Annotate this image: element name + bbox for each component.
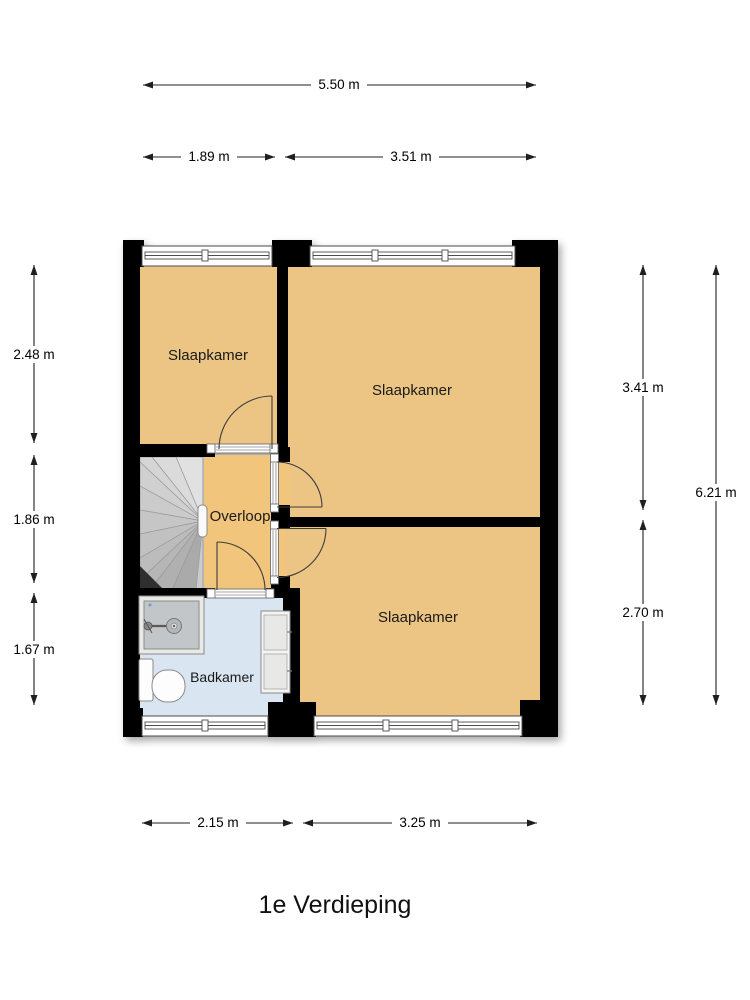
dimension-top-right: 3.51 m [285,148,536,165]
floorplan-canvas: Slaapkamer Slaapkamer Overloop Slaapkame… [0,0,750,1000]
wall-right [540,240,558,737]
window-top-left [142,246,272,266]
room-label-overloop: Overloop [210,508,271,525]
floor-title: 1e Verdieping [259,891,412,919]
floorplan-page: Slaapkamer Slaapkamer Overloop Slaapkame… [0,0,750,1000]
room-label-slaapkamer-topleft: Slaapkamer [168,347,248,364]
door-threshold-bottom-bedroom [271,521,279,584]
dimension-right-total: 6.21 m [688,265,744,705]
wall-top-left-corner [123,240,144,267]
window-bottom-right [314,716,522,736]
window-bottom-left [142,716,268,736]
wall-bottom-left-corner [123,708,143,737]
wall-above-stairs [123,444,215,457]
stairs [138,455,207,590]
door-threshold-topleft-bedroom [207,444,278,453]
svg-text:5.50 m: 5.50 m [318,77,359,92]
stairs-newel [198,505,207,537]
dimension-right-lower: 2.70 m [615,520,671,705]
svg-text:3.51 m: 3.51 m [390,149,431,164]
dimension-right-upper: 3.41 m [615,265,671,510]
wall-bottom-middle [268,702,316,737]
window-top-right [310,246,515,266]
svg-text:3.41 m: 3.41 m [622,380,663,395]
wall-left [123,240,140,737]
wall-bottom-right-corner [520,700,558,737]
dimension-bottom-left: 2.15 m [142,814,293,831]
room-label-slaapkamer-bottom: Slaapkamer [378,609,458,626]
svg-text:2.70 m: 2.70 m [622,605,663,620]
door-threshold-topright-bedroom [271,454,279,512]
svg-text:2.48 m: 2.48 m [13,347,54,362]
svg-text:1.67 m: 1.67 m [13,642,54,657]
door-threshold-badkamer [207,589,274,598]
svg-text:1.89 m: 1.89 m [188,149,229,164]
dimension-top-total: 5.50 m [143,76,536,93]
cabinet [261,611,292,693]
svg-text:1.86 m: 1.86 m [13,512,54,527]
svg-text:2.15 m: 2.15 m [197,815,238,830]
dimension-left-upper: 2.48 m [6,265,62,443]
dimension-left-middle: 1.86 m [6,455,62,583]
wall-between-right-rooms [288,517,540,527]
svg-text:6.21 m: 6.21 m [695,485,736,500]
dimension-left-lower: 1.67 m [6,593,62,705]
room-label-badkamer: Badkamer [190,669,254,685]
wall-top-pier [272,240,312,267]
dimension-top-left: 1.89 m [143,148,275,165]
wall-between-top-bedrooms [277,266,288,451]
floor-plan: Slaapkamer Slaapkamer Overloop Slaapkame… [123,240,558,737]
shower [139,596,204,654]
room-label-slaapkamer-topright: Slaapkamer [372,382,452,399]
dimension-bottom-right: 3.25 m [303,814,537,831]
svg-text:3.25 m: 3.25 m [399,815,440,830]
